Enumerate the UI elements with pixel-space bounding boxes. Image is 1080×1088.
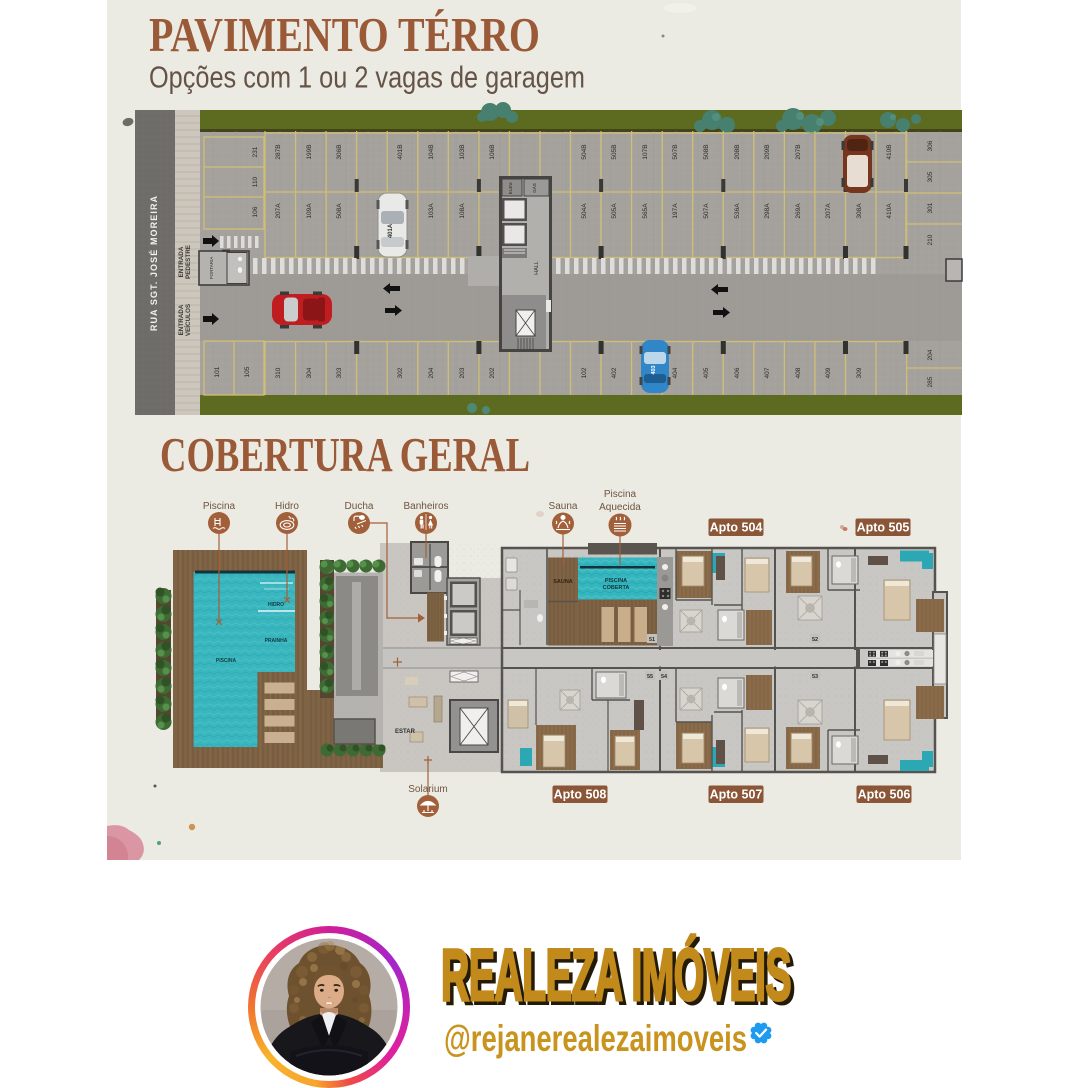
svg-text:Opções com 1 ou 2 vagas de gar: Opções com 1 ou 2 vagas de garagem [149,60,585,95]
svg-text:287B: 287B [275,144,282,159]
svg-text:105: 105 [244,366,251,377]
svg-text:54: 54 [661,674,668,680]
svg-text:508A: 508A [336,203,343,219]
svg-text:209B: 209B [764,144,771,159]
svg-text:ENTRADA: ENTRADA [178,246,185,277]
svg-text:53: 53 [812,674,818,680]
svg-text:PAVIMENTO TÉRRO: PAVIMENTO TÉRRO [149,7,540,62]
svg-text:406: 406 [734,367,741,378]
svg-text:51: 51 [649,637,655,643]
svg-text:Sauna: Sauna [549,501,578,512]
svg-text:405: 405 [703,367,710,378]
svg-text:197A: 197A [672,203,679,219]
svg-text:VEÍCULOS: VEÍCULOS [183,304,192,336]
svg-text:504A: 504A [581,203,588,219]
svg-text:ESTAR: ESTAR [395,729,416,735]
svg-text:Apto 507: Apto 507 [710,788,763,802]
svg-text:Apto 506: Apto 506 [858,788,911,802]
svg-text:402: 402 [611,367,618,378]
svg-text:301: 301 [927,202,934,213]
svg-text:106B: 106B [489,144,496,159]
svg-text:401A: 401A [388,223,394,238]
svg-text:REALEZA IMÓVEIS: REALEZA IMÓVEIS [441,935,791,1016]
svg-text:@rejanerealezaimoveis: @rejanerealezaimoveis [444,1018,747,1059]
svg-text:507B: 507B [672,144,679,159]
svg-text:308A: 308A [856,203,863,219]
svg-text:304: 304 [306,367,313,378]
svg-text:210: 210 [927,234,934,245]
svg-text:565A: 565A [642,203,649,219]
svg-text:110: 110 [252,176,259,187]
svg-text:302: 302 [397,367,404,378]
svg-text:410A: 410A [886,203,893,219]
svg-text:ENTRADA: ENTRADA [178,304,185,335]
svg-text:203: 203 [459,367,466,378]
svg-text:207A: 207A [275,203,282,219]
svg-text:507A: 507A [703,203,710,219]
svg-text:310: 310 [275,367,282,378]
svg-text:SAUNA: SAUNA [553,579,573,585]
svg-text:403: 403 [651,365,657,374]
svg-text:306: 306 [927,140,934,151]
svg-text:PISCINA: PISCINA [605,578,627,584]
svg-text:202: 202 [489,367,496,378]
svg-text:404: 404 [672,367,679,378]
svg-text:101: 101 [214,366,221,377]
svg-text:COBERTA: COBERTA [603,585,630,591]
svg-text:HIDRO: HIDRO [268,602,284,608]
svg-text:103A: 103A [428,203,435,219]
svg-text:269A: 269A [795,203,802,219]
svg-text:109A: 109A [306,203,313,219]
svg-text:Apto 504: Apto 504 [710,521,763,535]
svg-text:536A: 536A [734,203,741,219]
svg-text:PISCINA: PISCINA [216,658,237,664]
svg-text:55: 55 [647,674,653,680]
svg-text:204: 204 [428,367,435,378]
svg-text:PEDESTRE: PEDESTRE [185,245,192,279]
svg-text:PORTARIA: PORTARIA [209,257,214,280]
svg-text:505B: 505B [611,144,618,159]
svg-text:HALL: HALL [534,261,540,275]
svg-text:104B: 104B [428,144,435,159]
svg-text:408: 408 [795,367,802,378]
svg-text:508B: 508B [703,144,710,159]
svg-text:Apto 508: Apto 508 [554,788,607,802]
svg-text:409: 409 [825,367,832,378]
svg-text:207B: 207B [795,144,802,159]
svg-text:107B: 107B [642,144,649,159]
svg-text:504B: 504B [581,144,588,159]
svg-text:COBERTURA GERAL: COBERTURA GERAL [160,427,530,482]
svg-text:108A: 108A [459,203,466,219]
svg-text:ELEV.: ELEV. [508,182,513,194]
svg-text:303: 303 [336,367,343,378]
svg-text:207A: 207A [825,203,832,219]
svg-text:208B: 208B [734,144,741,159]
svg-text:285: 285 [927,376,934,387]
svg-text:Apto 505: Apto 505 [857,521,910,535]
svg-text:RUA SGT. JOSÉ MOREIRA: RUA SGT. JOSÉ MOREIRA [149,195,159,331]
svg-text:Aquecida: Aquecida [599,502,641,513]
svg-text:204: 204 [927,349,934,360]
svg-text:103B: 103B [459,144,466,159]
svg-text:Hidro: Hidro [275,501,299,512]
svg-text:410B: 410B [886,144,893,159]
svg-text:401B: 401B [397,144,404,159]
svg-text:Piscina: Piscina [604,489,637,500]
svg-text:Piscina: Piscina [203,501,236,512]
svg-text:GÁS: GÁS [531,183,537,193]
svg-text:199B: 199B [306,144,313,159]
svg-text:Banheiros: Banheiros [403,501,448,512]
svg-text:52: 52 [812,637,818,643]
svg-text:231: 231 [252,146,259,157]
svg-text:505A: 505A [611,203,618,219]
svg-text:305: 305 [927,171,934,182]
svg-text:407: 407 [764,367,771,378]
svg-text:102: 102 [581,367,588,378]
svg-text:298A: 298A [764,203,771,219]
svg-text:106: 106 [252,206,259,217]
svg-text:306B: 306B [336,144,343,159]
svg-text:Ducha: Ducha [345,501,374,512]
svg-text:PRAINHA: PRAINHA [265,638,288,644]
svg-text:309: 309 [856,367,863,378]
